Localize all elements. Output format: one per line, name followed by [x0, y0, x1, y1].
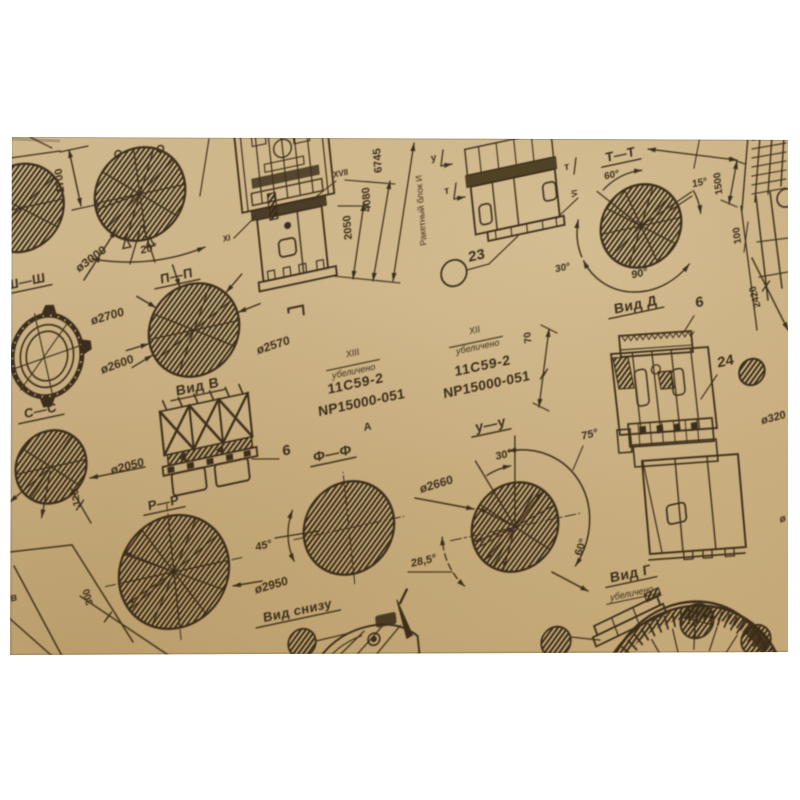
svg-text:120: 120 — [70, 488, 83, 508]
svg-text:24: 24 — [716, 351, 735, 372]
svg-text:2050: 2050 — [341, 214, 354, 241]
svg-text:A: A — [363, 420, 372, 434]
svg-text:6: 6 — [695, 293, 705, 312]
svg-text:6745: 6745 — [371, 147, 384, 174]
svg-text:100: 100 — [731, 226, 744, 245]
svg-text:XI: XI — [223, 233, 231, 244]
svg-text:6: 6 — [282, 441, 292, 460]
svg-text:VI: VI — [570, 189, 579, 198]
svg-text:1500: 1500 — [712, 171, 725, 196]
svg-text:4080: 4080 — [360, 186, 373, 213]
svg-text:23: 23 — [467, 245, 485, 265]
